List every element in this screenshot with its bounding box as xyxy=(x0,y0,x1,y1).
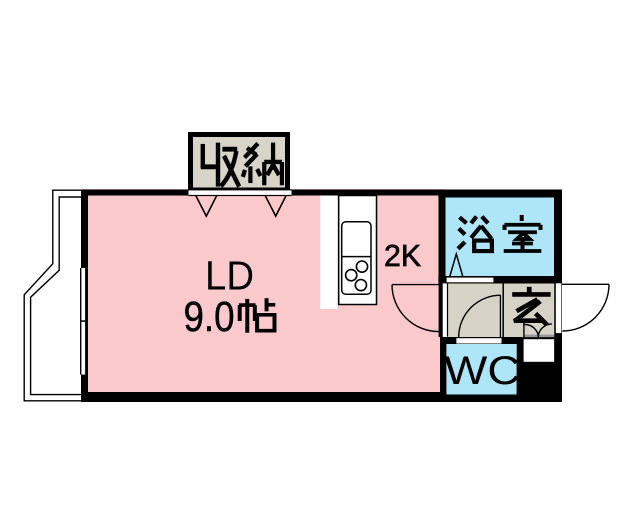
svg-text:9.0: 9.0 xyxy=(184,293,235,341)
svg-text:2K: 2K xyxy=(384,238,422,273)
svg-text:LD: LD xyxy=(205,253,254,299)
svg-text:WC: WC xyxy=(444,349,520,393)
